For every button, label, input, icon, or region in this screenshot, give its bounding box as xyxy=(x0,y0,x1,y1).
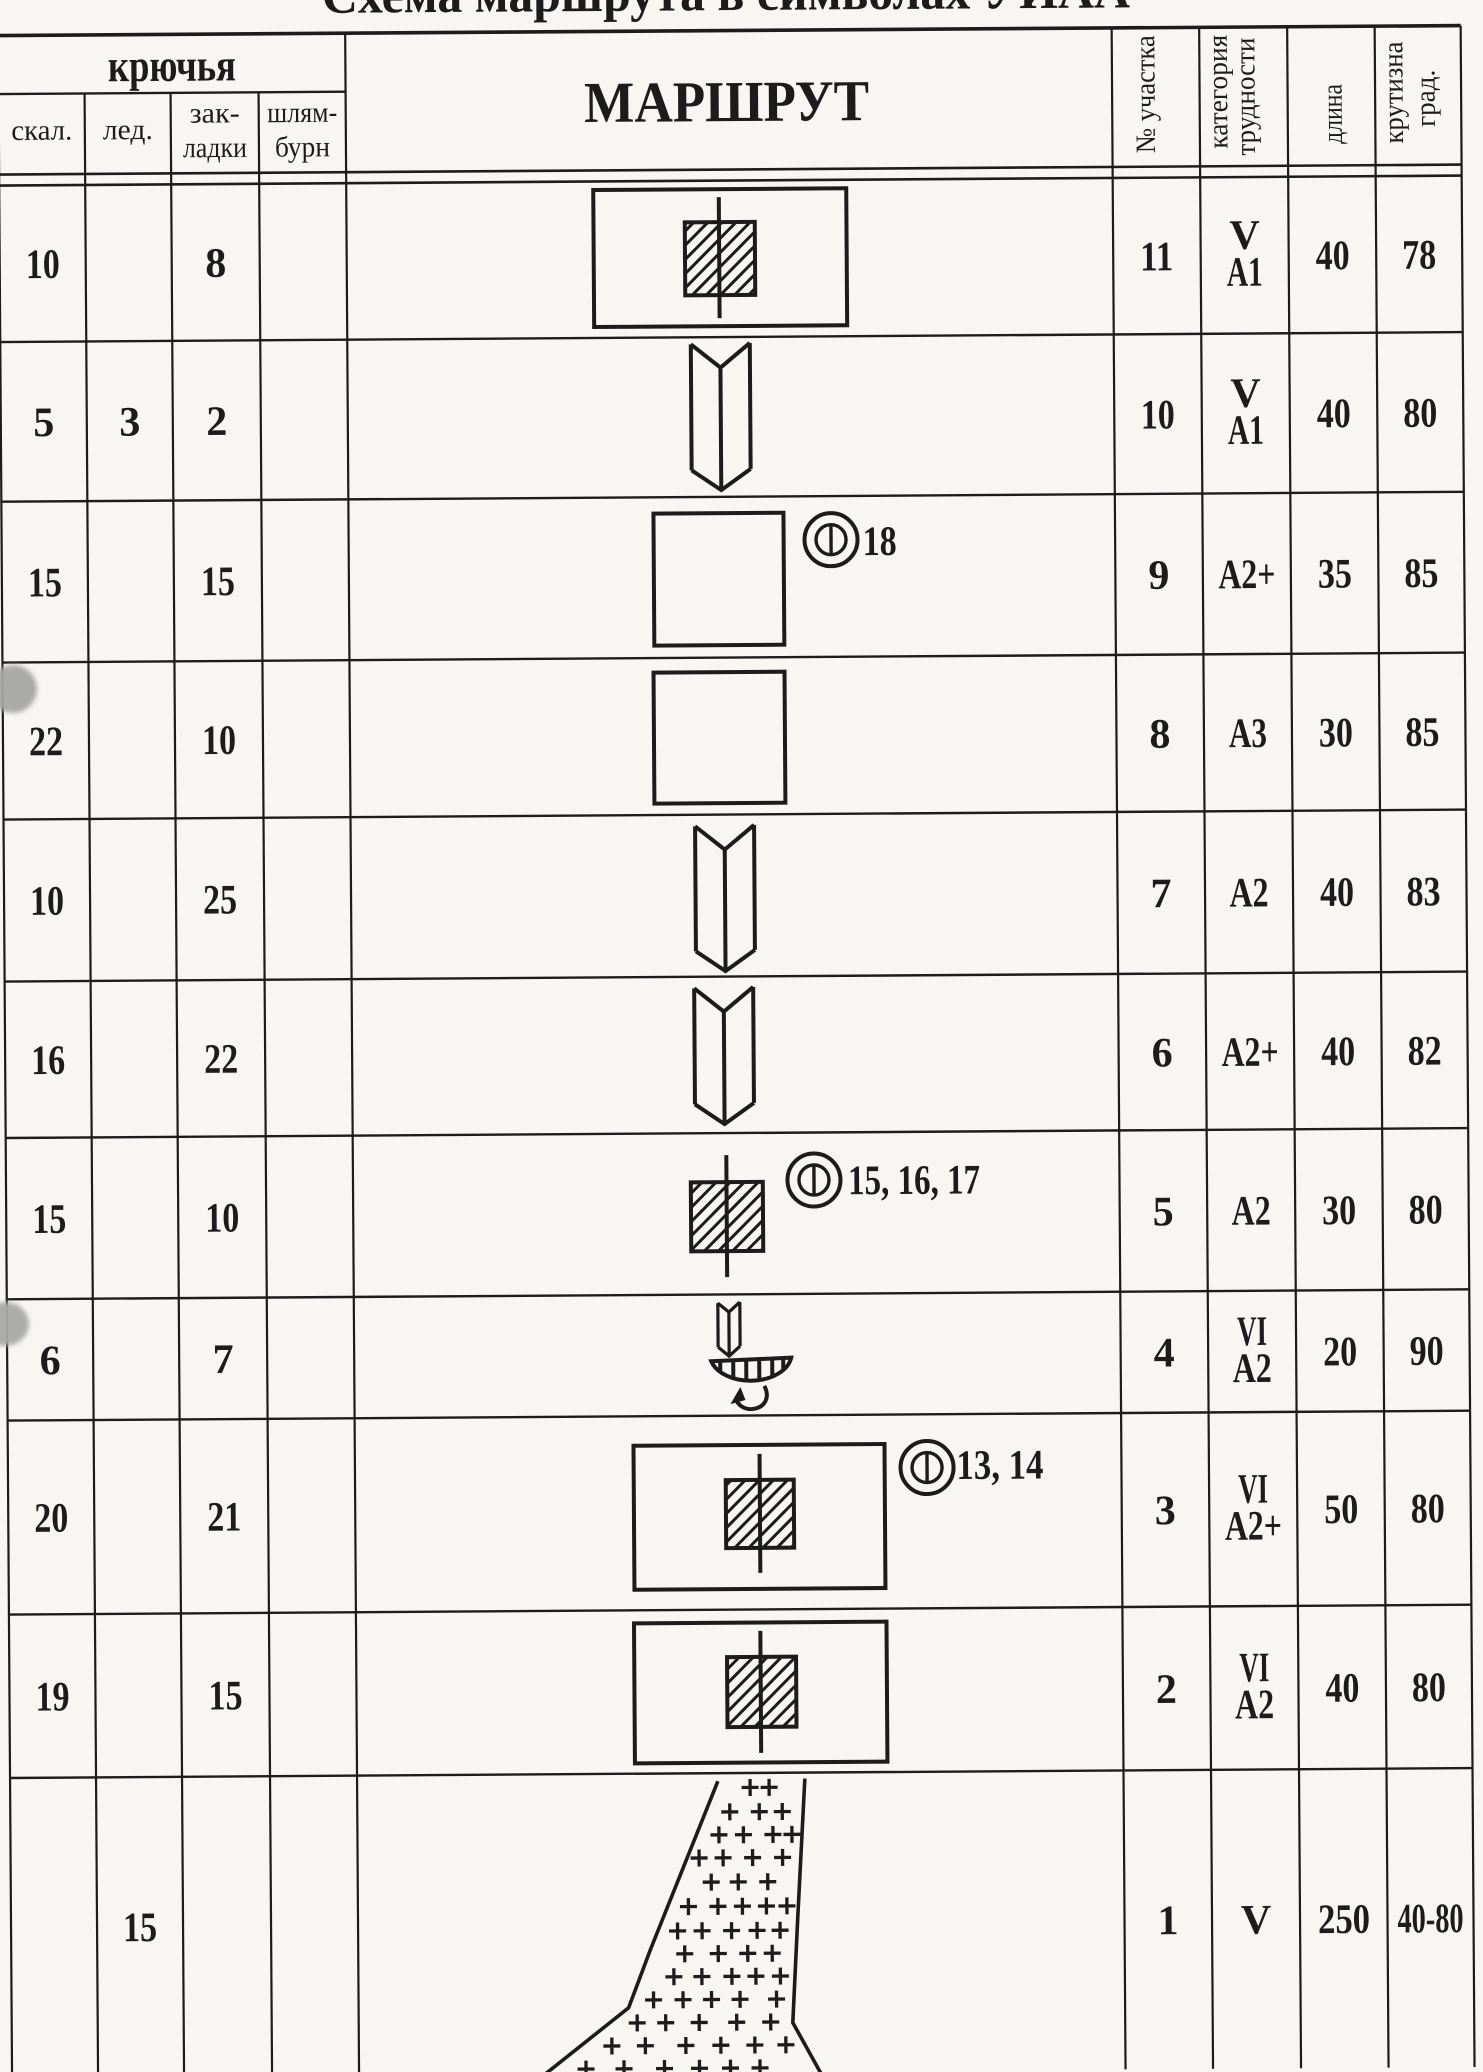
svg-text:5: 5 xyxy=(33,400,54,446)
svg-text:80: 80 xyxy=(1409,1187,1443,1233)
svg-text:A2+: A2+ xyxy=(1221,1030,1278,1076)
svg-text:11: 11 xyxy=(1140,234,1173,280)
svg-text:80: 80 xyxy=(1403,391,1437,437)
svg-text:A2: A2 xyxy=(1235,1682,1274,1728)
svg-text:40: 40 xyxy=(1317,391,1351,437)
svg-text:A2: A2 xyxy=(1232,1189,1271,1235)
svg-text:A2: A2 xyxy=(1233,1346,1272,1392)
svg-text:35: 35 xyxy=(1318,551,1352,597)
svg-text:8: 8 xyxy=(1149,712,1170,758)
svg-text:10: 10 xyxy=(26,242,60,288)
svg-text:80: 80 xyxy=(1411,1486,1445,1532)
svg-text:85: 85 xyxy=(1405,710,1439,756)
svg-text:A2+: A2+ xyxy=(1225,1503,1282,1549)
svg-text:83: 83 xyxy=(1406,869,1440,915)
svg-text:Схема маршрута в символах УИАА: Схема маршрута в символах УИАА xyxy=(322,0,1131,25)
svg-text:9: 9 xyxy=(1148,553,1169,599)
svg-text:2: 2 xyxy=(206,399,227,445)
svg-text:40: 40 xyxy=(1321,1029,1355,1075)
svg-text:40-80: 40-80 xyxy=(1397,1896,1463,1942)
svg-text:15: 15 xyxy=(123,1905,157,1951)
svg-text:скал.: скал. xyxy=(11,115,72,147)
svg-text:10: 10 xyxy=(30,879,64,925)
svg-text:6: 6 xyxy=(40,1338,61,1384)
svg-text:25: 25 xyxy=(203,877,237,923)
svg-text:80: 80 xyxy=(1412,1665,1446,1711)
svg-text:град.: град. xyxy=(1410,70,1441,127)
svg-text:5: 5 xyxy=(1153,1189,1174,1235)
svg-text:шлям-: шлям- xyxy=(267,97,337,129)
svg-text:7: 7 xyxy=(213,1337,234,1383)
svg-text:бурн: бурн xyxy=(275,131,330,163)
svg-text:A1: A1 xyxy=(1227,250,1263,296)
svg-text:A2: A2 xyxy=(1229,870,1268,916)
svg-text:85: 85 xyxy=(1404,551,1438,597)
svg-text:50: 50 xyxy=(1324,1487,1358,1533)
svg-text:2: 2 xyxy=(1156,1667,1177,1713)
svg-text:A1: A1 xyxy=(1228,408,1264,454)
svg-text:40: 40 xyxy=(1320,870,1354,916)
svg-text:13, 14: 13, 14 xyxy=(956,1442,1043,1489)
svg-text:16: 16 xyxy=(31,1038,65,1084)
svg-text:8: 8 xyxy=(205,241,226,287)
svg-text:V: V xyxy=(1241,1897,1272,1943)
svg-text:10: 10 xyxy=(1141,392,1175,438)
svg-text:15, 16, 17: 15, 16, 17 xyxy=(848,1157,980,1204)
svg-text:30: 30 xyxy=(1322,1188,1356,1234)
svg-text:4: 4 xyxy=(1154,1331,1175,1377)
svg-text:20: 20 xyxy=(1323,1329,1357,1375)
svg-text:6: 6 xyxy=(1151,1030,1172,1076)
svg-text:15: 15 xyxy=(208,1673,242,1719)
svg-text:№ участка: № участка xyxy=(1130,35,1162,154)
svg-text:30: 30 xyxy=(1319,710,1353,756)
svg-text:длина: длина xyxy=(1318,83,1349,144)
svg-text:1: 1 xyxy=(1157,1898,1178,1944)
svg-text:3: 3 xyxy=(1155,1488,1176,1534)
svg-text:10: 10 xyxy=(202,718,236,764)
svg-text:21: 21 xyxy=(207,1495,241,1541)
svg-text:3: 3 xyxy=(119,399,140,445)
svg-text:250: 250 xyxy=(1318,1897,1370,1943)
svg-text:лед.: лед. xyxy=(103,114,153,146)
svg-text:82: 82 xyxy=(1407,1028,1441,1074)
svg-text:18: 18 xyxy=(862,519,896,565)
svg-text:зак-: зак- xyxy=(190,97,240,129)
svg-text:10: 10 xyxy=(205,1196,239,1242)
svg-text:15: 15 xyxy=(32,1197,66,1243)
svg-text:МАРШРУТ: МАРШРУТ xyxy=(584,68,869,135)
svg-text:40: 40 xyxy=(1325,1666,1359,1712)
svg-text:7: 7 xyxy=(1150,871,1171,917)
svg-text:крутизна: крутизна xyxy=(1378,41,1410,144)
svg-text:20: 20 xyxy=(34,1496,68,1542)
svg-text:40: 40 xyxy=(1316,233,1350,279)
svg-text:A3: A3 xyxy=(1229,711,1267,757)
svg-text:22: 22 xyxy=(29,719,63,765)
svg-text:15: 15 xyxy=(201,559,235,605)
svg-text:крючья: крючья xyxy=(108,39,236,91)
svg-text:трудности: трудности xyxy=(1230,37,1262,155)
svg-text:15: 15 xyxy=(28,560,62,606)
svg-text:78: 78 xyxy=(1402,233,1436,279)
svg-text:22: 22 xyxy=(204,1037,238,1083)
svg-text:90: 90 xyxy=(1410,1329,1444,1375)
svg-text:ладки: ладки xyxy=(183,132,247,164)
svg-text:19: 19 xyxy=(35,1674,69,1720)
svg-text:A2+: A2+ xyxy=(1218,552,1275,598)
